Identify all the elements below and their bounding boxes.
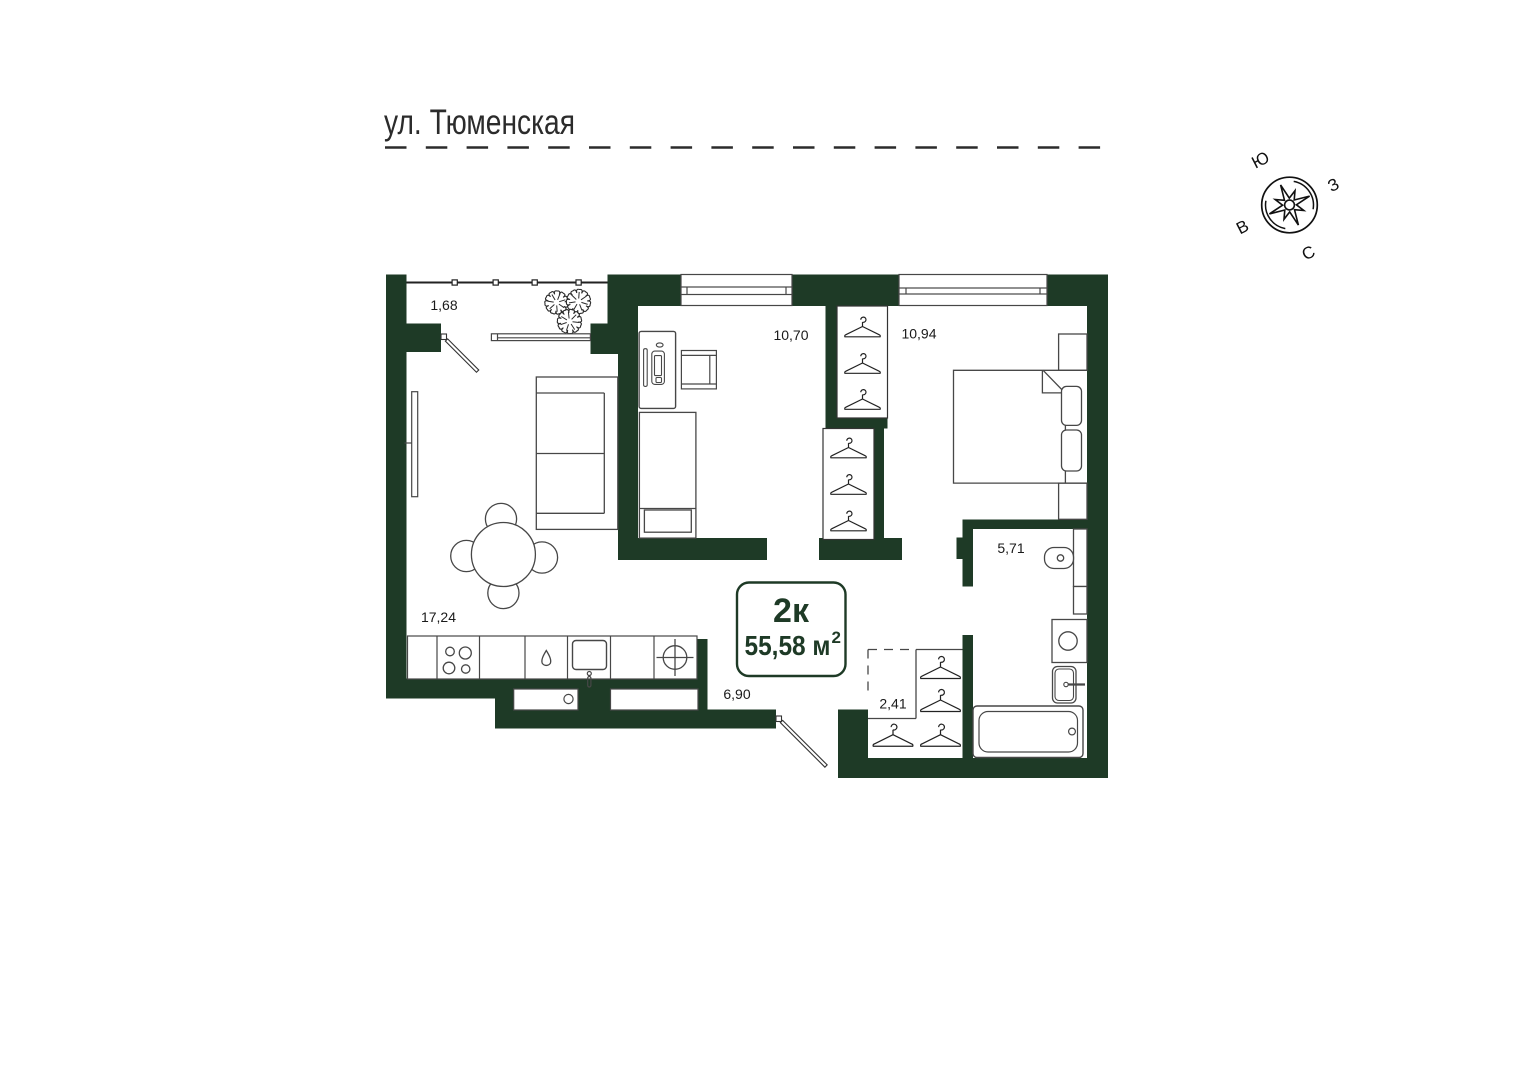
svg-text:1,68: 1,68 bbox=[430, 297, 457, 313]
svg-text:2к: 2к bbox=[773, 592, 810, 630]
svg-text:ул. Тюменская: ул. Тюменская bbox=[384, 103, 575, 142]
svg-text:55,58 м: 55,58 м bbox=[745, 630, 831, 661]
svg-text:10,70: 10,70 bbox=[773, 327, 808, 343]
svg-text:17,24: 17,24 bbox=[421, 609, 456, 625]
svg-text:2: 2 bbox=[832, 628, 841, 647]
svg-text:2,41: 2,41 bbox=[879, 696, 906, 712]
svg-text:5,71: 5,71 bbox=[997, 540, 1024, 556]
svg-text:6,90: 6,90 bbox=[723, 686, 750, 702]
svg-text:10,94: 10,94 bbox=[901, 326, 936, 342]
